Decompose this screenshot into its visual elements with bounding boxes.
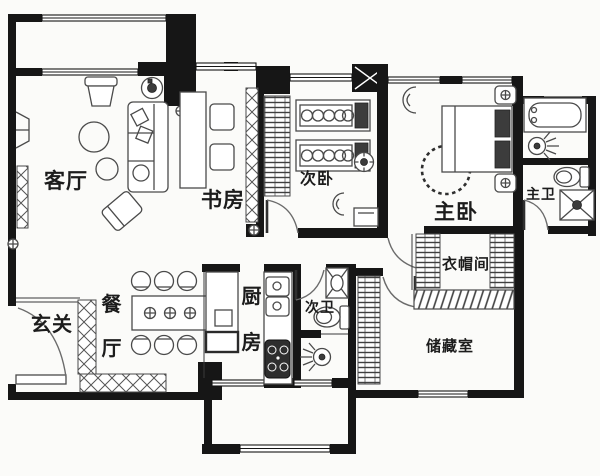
floor-plan: 客厅 书房 次卧 bbox=[0, 0, 600, 476]
window-balcony-top bbox=[42, 15, 166, 21]
media-cabinet bbox=[17, 166, 28, 228]
slider-kitchen-balcony bbox=[212, 380, 264, 386]
dining-chairs-top bbox=[132, 272, 197, 291]
room-label-study: 书房 bbox=[201, 188, 245, 212]
sofa-icon bbox=[128, 102, 168, 192]
shower-head-icon bbox=[529, 132, 560, 160]
living-room: 客厅 bbox=[8, 77, 186, 249]
desk bbox=[180, 92, 206, 188]
second-bathroom: 次卫 bbox=[300, 268, 349, 371]
masterbath-door bbox=[524, 200, 548, 230]
window-storage-bottom bbox=[418, 391, 468, 397]
entry-cabinet bbox=[80, 374, 166, 392]
floor-plan-drawing: 客厅 书房 次卧 bbox=[0, 0, 600, 476]
cloakroom: 衣帽间 bbox=[412, 234, 514, 309]
desk-chair-1 bbox=[210, 104, 234, 130]
nightstand-1 bbox=[495, 86, 516, 104]
stove-icon bbox=[265, 340, 290, 378]
dining-chairs-bottom bbox=[132, 336, 197, 355]
shelf-strip bbox=[414, 290, 514, 309]
washbasin-icon bbox=[326, 268, 348, 298]
wall-marker-3 bbox=[249, 225, 259, 235]
tv-stand bbox=[354, 208, 378, 226]
storage-door bbox=[383, 276, 415, 307]
shower-head-icon-2 bbox=[300, 343, 331, 371]
room-label-bath2: 次卫 bbox=[305, 299, 335, 315]
bedroom2-door bbox=[267, 200, 298, 233]
wardrobe-right bbox=[490, 234, 514, 288]
plant-decor-icon bbox=[333, 193, 344, 215]
room-label-entry: 玄关 bbox=[31, 312, 73, 336]
shoe-cabinet bbox=[78, 300, 96, 374]
room-label-master: 主卧 bbox=[434, 201, 478, 224]
armchair-icon bbox=[85, 77, 117, 106]
window-balcony-bottom bbox=[240, 445, 330, 452]
room-label-cloakroom: 衣帽间 bbox=[442, 255, 490, 273]
wall-marker-2 bbox=[8, 239, 18, 249]
window-master-top-left bbox=[388, 77, 440, 83]
toilet-master-icon bbox=[554, 167, 589, 187]
window-master-top-right bbox=[462, 77, 512, 83]
kitchen-sink-icon bbox=[266, 277, 289, 316]
kitchen-cabinet bbox=[206, 332, 238, 352]
kitchen-island bbox=[206, 272, 238, 332]
lounge-chair-icon bbox=[101, 190, 144, 232]
room-label-living: 客厅 bbox=[44, 169, 88, 193]
window-bedroom2-top bbox=[290, 74, 352, 81]
second-bedroom: 次卧 bbox=[264, 96, 378, 226]
master-bedroom: 主卧 bbox=[403, 86, 516, 224]
storage-closet bbox=[358, 276, 380, 384]
wardrobe-left bbox=[416, 234, 440, 288]
plant-decor-icon bbox=[403, 87, 416, 113]
bookshelf bbox=[246, 88, 258, 222]
dining-room: 餐厅 bbox=[102, 272, 209, 361]
wardrobe-bedroom2 bbox=[264, 96, 290, 196]
nightstand-2 bbox=[495, 174, 516, 192]
window-study-top bbox=[196, 63, 256, 70]
speaker-icon bbox=[142, 78, 163, 99]
shower-pan-icon bbox=[560, 190, 594, 220]
room-label-bedroom2: 次卧 bbox=[300, 169, 334, 188]
side-table bbox=[96, 158, 118, 180]
desk-chair-2 bbox=[210, 144, 234, 170]
ceiling-fan-icon bbox=[355, 153, 374, 172]
single-bed-1 bbox=[296, 100, 370, 131]
tv-icon bbox=[16, 112, 29, 148]
coffee-table bbox=[79, 122, 109, 152]
bathtub-icon bbox=[524, 98, 586, 132]
room-label-kitchen: 厨房 bbox=[242, 286, 263, 354]
double-bed bbox=[442, 106, 512, 172]
room-label-dining: 餐厅 bbox=[102, 292, 123, 360]
study: 书房 bbox=[180, 88, 258, 222]
window-living-top bbox=[42, 69, 138, 75]
slider-bath2-balcony bbox=[294, 380, 332, 386]
room-label-masterbath: 主卫 bbox=[526, 186, 556, 202]
room-label-storage: 储藏室 bbox=[426, 337, 474, 355]
